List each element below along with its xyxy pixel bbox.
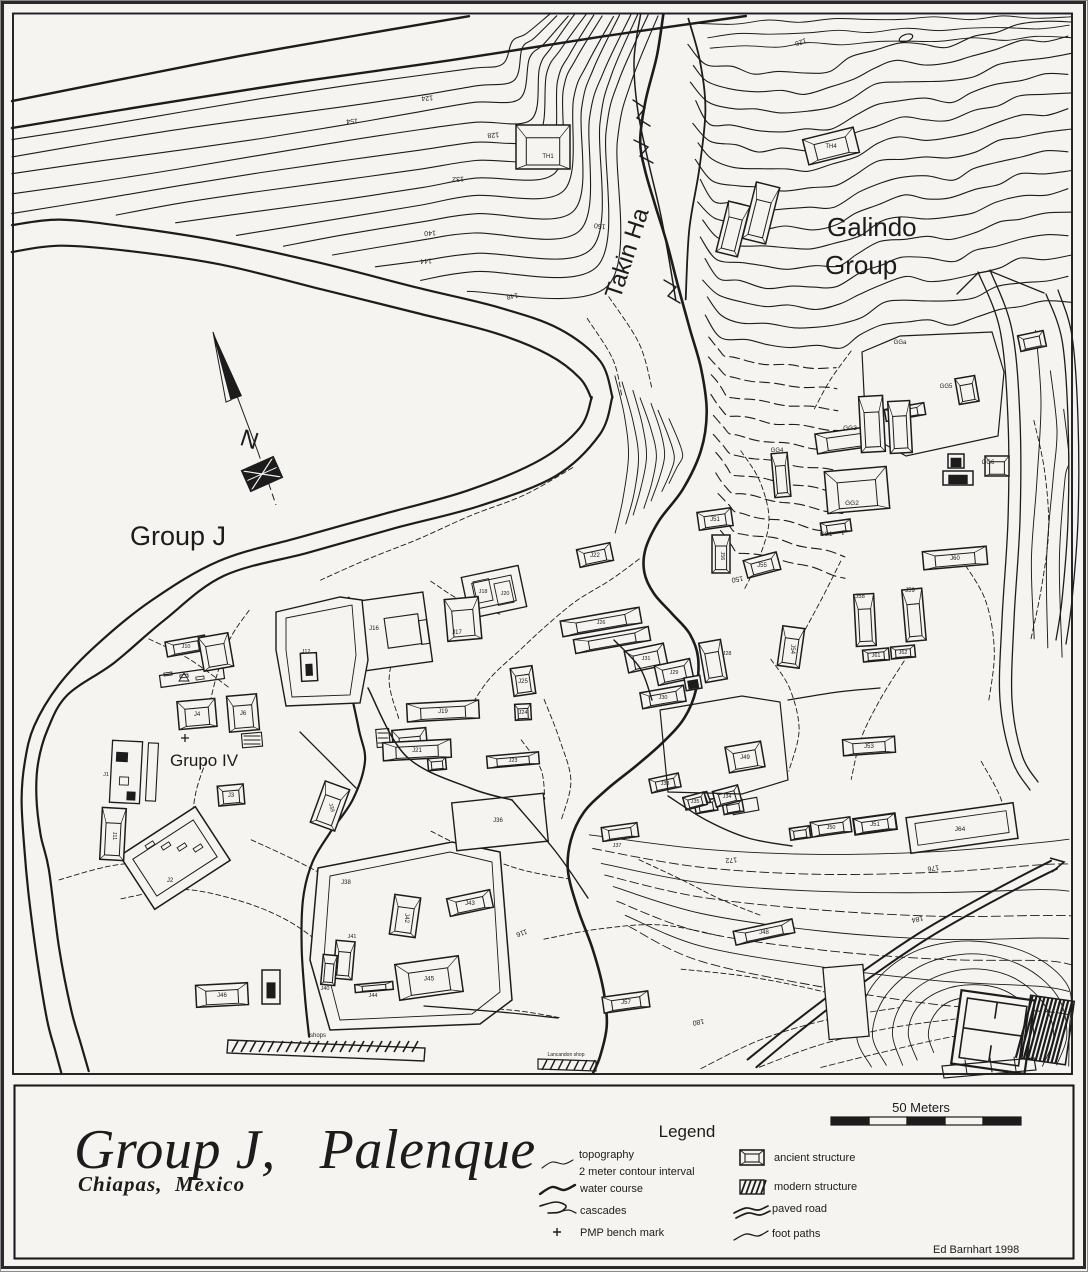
svg-text:J37: J37 (613, 843, 622, 849)
svg-text:J20: J20 (501, 591, 510, 597)
svg-text:J34: J34 (723, 794, 732, 800)
svg-text:J38: J38 (341, 880, 351, 886)
svg-text:J29: J29 (670, 670, 679, 676)
svg-text:topography: topography (579, 1149, 635, 1161)
svg-text:J46: J46 (217, 993, 227, 999)
svg-text:GGa: GGa (894, 340, 907, 346)
svg-text:Group: Group (825, 250, 897, 280)
svg-text:J35: J35 (691, 799, 700, 805)
svg-text:J43: J43 (465, 901, 475, 907)
svg-text:J12: J12 (302, 649, 311, 655)
svg-text:J58: J58 (855, 594, 865, 600)
svg-text:J41: J41 (348, 934, 357, 940)
svg-text:GG1: GG1 (820, 532, 833, 538)
svg-text:shops: shops (310, 1033, 326, 1039)
svg-text:J1: J1 (103, 772, 109, 778)
svg-text:GG5: GG5 (940, 384, 953, 390)
svg-text:J48: J48 (759, 930, 769, 936)
svg-text:foot paths: foot paths (772, 1228, 821, 1240)
svg-text:150: 150 (594, 221, 606, 229)
svg-text:GG3: GG3 (843, 425, 857, 432)
svg-text:J18: J18 (479, 589, 488, 595)
svg-text:Chiapas, Mexico: Chiapas, Mexico (78, 1172, 245, 1196)
svg-text:Legend: Legend (659, 1122, 716, 1141)
svg-text:2 meter contour interval: 2 meter contour interval (579, 1166, 695, 1178)
svg-text:J45: J45 (424, 975, 435, 982)
svg-text:Galindo: Galindo (827, 212, 917, 242)
svg-text:J44: J44 (369, 993, 378, 999)
svg-text:J51: J51 (870, 822, 880, 828)
svg-text:GG2: GG2 (845, 500, 859, 507)
svg-text:J55: J55 (757, 563, 767, 569)
svg-text:Group J: Group J (130, 521, 226, 551)
svg-text:J33: J33 (661, 781, 670, 787)
svg-text:water course: water course (579, 1183, 643, 1195)
svg-text:TH1: TH1 (542, 154, 554, 160)
svg-text:J31: J31 (642, 656, 651, 662)
svg-text:J51: J51 (710, 517, 720, 523)
svg-text:J26: J26 (597, 620, 606, 626)
svg-text:PMP bench mark: PMP bench mark (580, 1227, 665, 1239)
svg-text:J11: J11 (111, 832, 117, 840)
svg-text:132: 132 (452, 175, 464, 182)
svg-text:GG6: GG6 (982, 460, 995, 466)
svg-text:J49: J49 (740, 755, 750, 761)
svg-text:J10: J10 (182, 644, 191, 650)
svg-text:J50: J50 (827, 825, 836, 831)
svg-text:ancient structure: ancient structure (774, 1152, 855, 1164)
svg-text:J40: J40 (321, 986, 330, 992)
svg-text:140: 140 (424, 229, 436, 236)
svg-text:J30: J30 (659, 695, 668, 701)
svg-text:J60: J60 (950, 556, 960, 562)
svg-text:J3: J3 (228, 793, 235, 799)
svg-text:J61: J61 (872, 653, 881, 659)
svg-text:50 Meters: 50 Meters (892, 1100, 950, 1115)
svg-text:J28: J28 (723, 651, 732, 657)
svg-text:J25: J25 (518, 679, 528, 685)
svg-text:124: 124 (421, 93, 433, 101)
svg-text:J4: J4 (194, 712, 201, 718)
svg-text:154: 154 (346, 117, 358, 124)
svg-text:J42: J42 (403, 913, 409, 923)
svg-text:172: 172 (725, 855, 737, 863)
svg-text:J64: J64 (955, 826, 966, 833)
svg-text:Ed Barnhart 1998: Ed Barnhart 1998 (933, 1244, 1019, 1256)
svg-text:J57: J57 (621, 1000, 631, 1006)
svg-text:paved road: paved road (772, 1203, 827, 1215)
svg-text:J54: J54 (789, 644, 795, 654)
svg-text:Grupo IV: Grupo IV (170, 751, 239, 770)
svg-text:modern structure: modern structure (774, 1181, 857, 1193)
svg-text:GG10: GG10 (951, 476, 966, 482)
svg-text:GG4: GG4 (771, 448, 784, 454)
svg-text:J59: J59 (905, 588, 915, 594)
svg-text:144: 144 (420, 257, 432, 264)
svg-text:J56: J56 (719, 551, 725, 560)
svg-text:128: 128 (487, 130, 499, 138)
svg-text:J62: J62 (899, 650, 908, 656)
svg-text:J6: J6 (240, 711, 247, 717)
svg-text:J16: J16 (369, 626, 379, 632)
svg-text:J2: J2 (167, 878, 174, 884)
svg-text:J21: J21 (412, 748, 422, 754)
svg-text:J22: J22 (590, 553, 600, 559)
svg-text:Lancandon shop: Lancandon shop (548, 1052, 585, 1058)
svg-text:TH4: TH4 (825, 144, 837, 150)
svg-text:J24: J24 (519, 710, 528, 716)
svg-text:cascades: cascades (580, 1205, 627, 1217)
svg-text:J19: J19 (438, 709, 448, 715)
svg-text:J17: J17 (452, 630, 462, 636)
svg-text:J53: J53 (864, 744, 874, 750)
svg-text:J23: J23 (509, 758, 518, 764)
svg-text:J36: J36 (493, 818, 503, 824)
